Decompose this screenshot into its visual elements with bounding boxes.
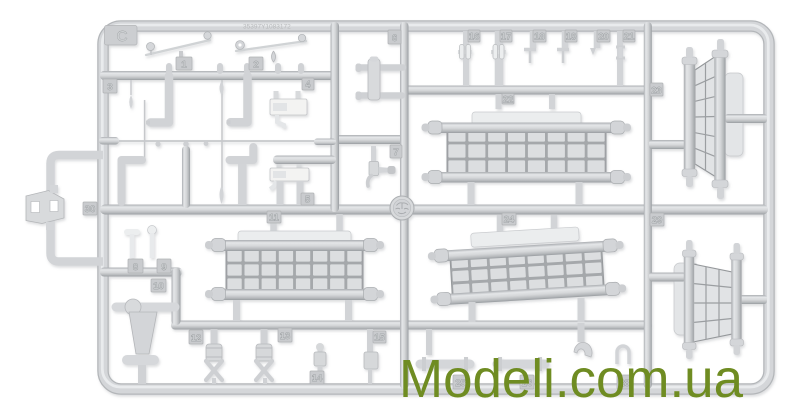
svg-text:19: 19 [566, 32, 577, 43]
svg-text:3: 3 [107, 82, 112, 93]
svg-text:21: 21 [624, 32, 635, 43]
svg-text:1: 1 [181, 60, 187, 71]
svg-text:17: 17 [501, 32, 512, 43]
svg-text:13: 13 [280, 331, 291, 342]
svg-text:6: 6 [392, 33, 397, 44]
svg-text:18: 18 [534, 32, 545, 43]
svg-text:12: 12 [191, 333, 202, 344]
svg-text:11: 11 [269, 213, 280, 224]
svg-text:29: 29 [652, 215, 663, 226]
svg-text:9: 9 [161, 262, 166, 273]
svg-text:30: 30 [85, 204, 96, 215]
svg-text:Modeli.com.ua: Modeli.com.ua [399, 349, 744, 409]
svg-text:8: 8 [133, 262, 138, 273]
svg-text:22: 22 [503, 95, 514, 106]
svg-text:35397Y1083172: 35397Y1083172 [243, 23, 291, 30]
svg-text:C: C [117, 28, 128, 45]
svg-text:14: 14 [312, 373, 323, 384]
svg-text:10: 10 [153, 281, 164, 292]
svg-text:2: 2 [253, 60, 258, 71]
svg-text:23: 23 [651, 86, 662, 97]
svg-text:15: 15 [374, 333, 385, 344]
svg-text:4: 4 [305, 80, 311, 91]
svg-text:7: 7 [393, 147, 398, 158]
svg-text:20: 20 [598, 32, 609, 43]
svg-text:16: 16 [469, 32, 480, 43]
svg-text:5: 5 [305, 195, 311, 206]
svg-text:24: 24 [504, 215, 515, 226]
